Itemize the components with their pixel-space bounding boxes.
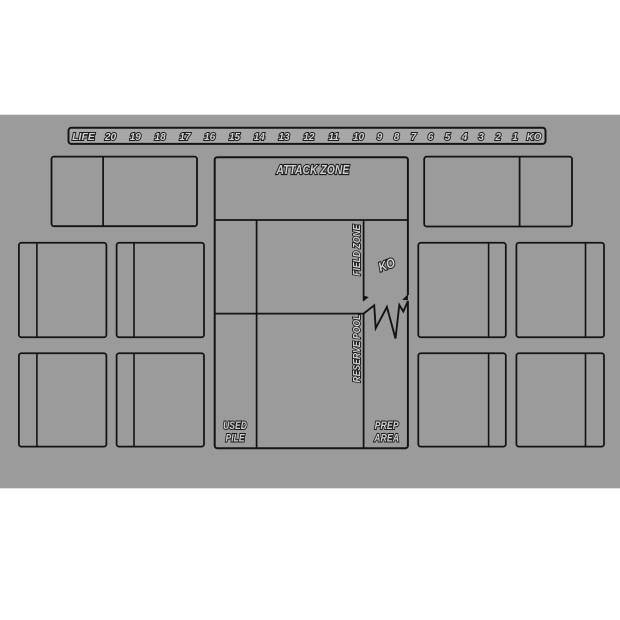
svg-text:RESERVE POOL: RESERVE POOL: [351, 315, 363, 383]
svg-text:20: 20: [104, 132, 117, 143]
svg-text:13: 13: [279, 132, 291, 143]
svg-text:12: 12: [303, 132, 315, 143]
svg-text:USED: USED: [223, 420, 247, 432]
svg-text:6: 6: [428, 132, 434, 143]
svg-text:AREA: AREA: [373, 432, 399, 444]
svg-text:ATTACK ZONE: ATTACK ZONE: [275, 163, 350, 177]
svg-text:KO: KO: [527, 132, 542, 143]
svg-text:3: 3: [478, 132, 484, 143]
svg-text:FIELD ZONE: FIELD ZONE: [351, 224, 363, 276]
svg-text:17: 17: [179, 132, 191, 143]
svg-text:18: 18: [155, 132, 167, 143]
svg-text:LIFE: LIFE: [72, 131, 96, 143]
svg-text:8: 8: [394, 132, 400, 143]
svg-text:16: 16: [204, 132, 216, 143]
svg-text:19: 19: [130, 132, 142, 143]
svg-text:9: 9: [377, 132, 383, 143]
svg-text:11: 11: [329, 132, 340, 143]
svg-text:5: 5: [445, 132, 451, 143]
svg-text:10: 10: [353, 132, 365, 143]
svg-text:15: 15: [229, 132, 241, 143]
svg-text:2: 2: [494, 132, 501, 143]
svg-text:PREP: PREP: [375, 420, 399, 432]
svg-text:14: 14: [254, 132, 266, 143]
svg-text:7: 7: [411, 132, 417, 143]
svg-text:4: 4: [461, 132, 468, 143]
svg-text:PILE: PILE: [225, 432, 244, 444]
svg-text:1: 1: [512, 132, 518, 143]
